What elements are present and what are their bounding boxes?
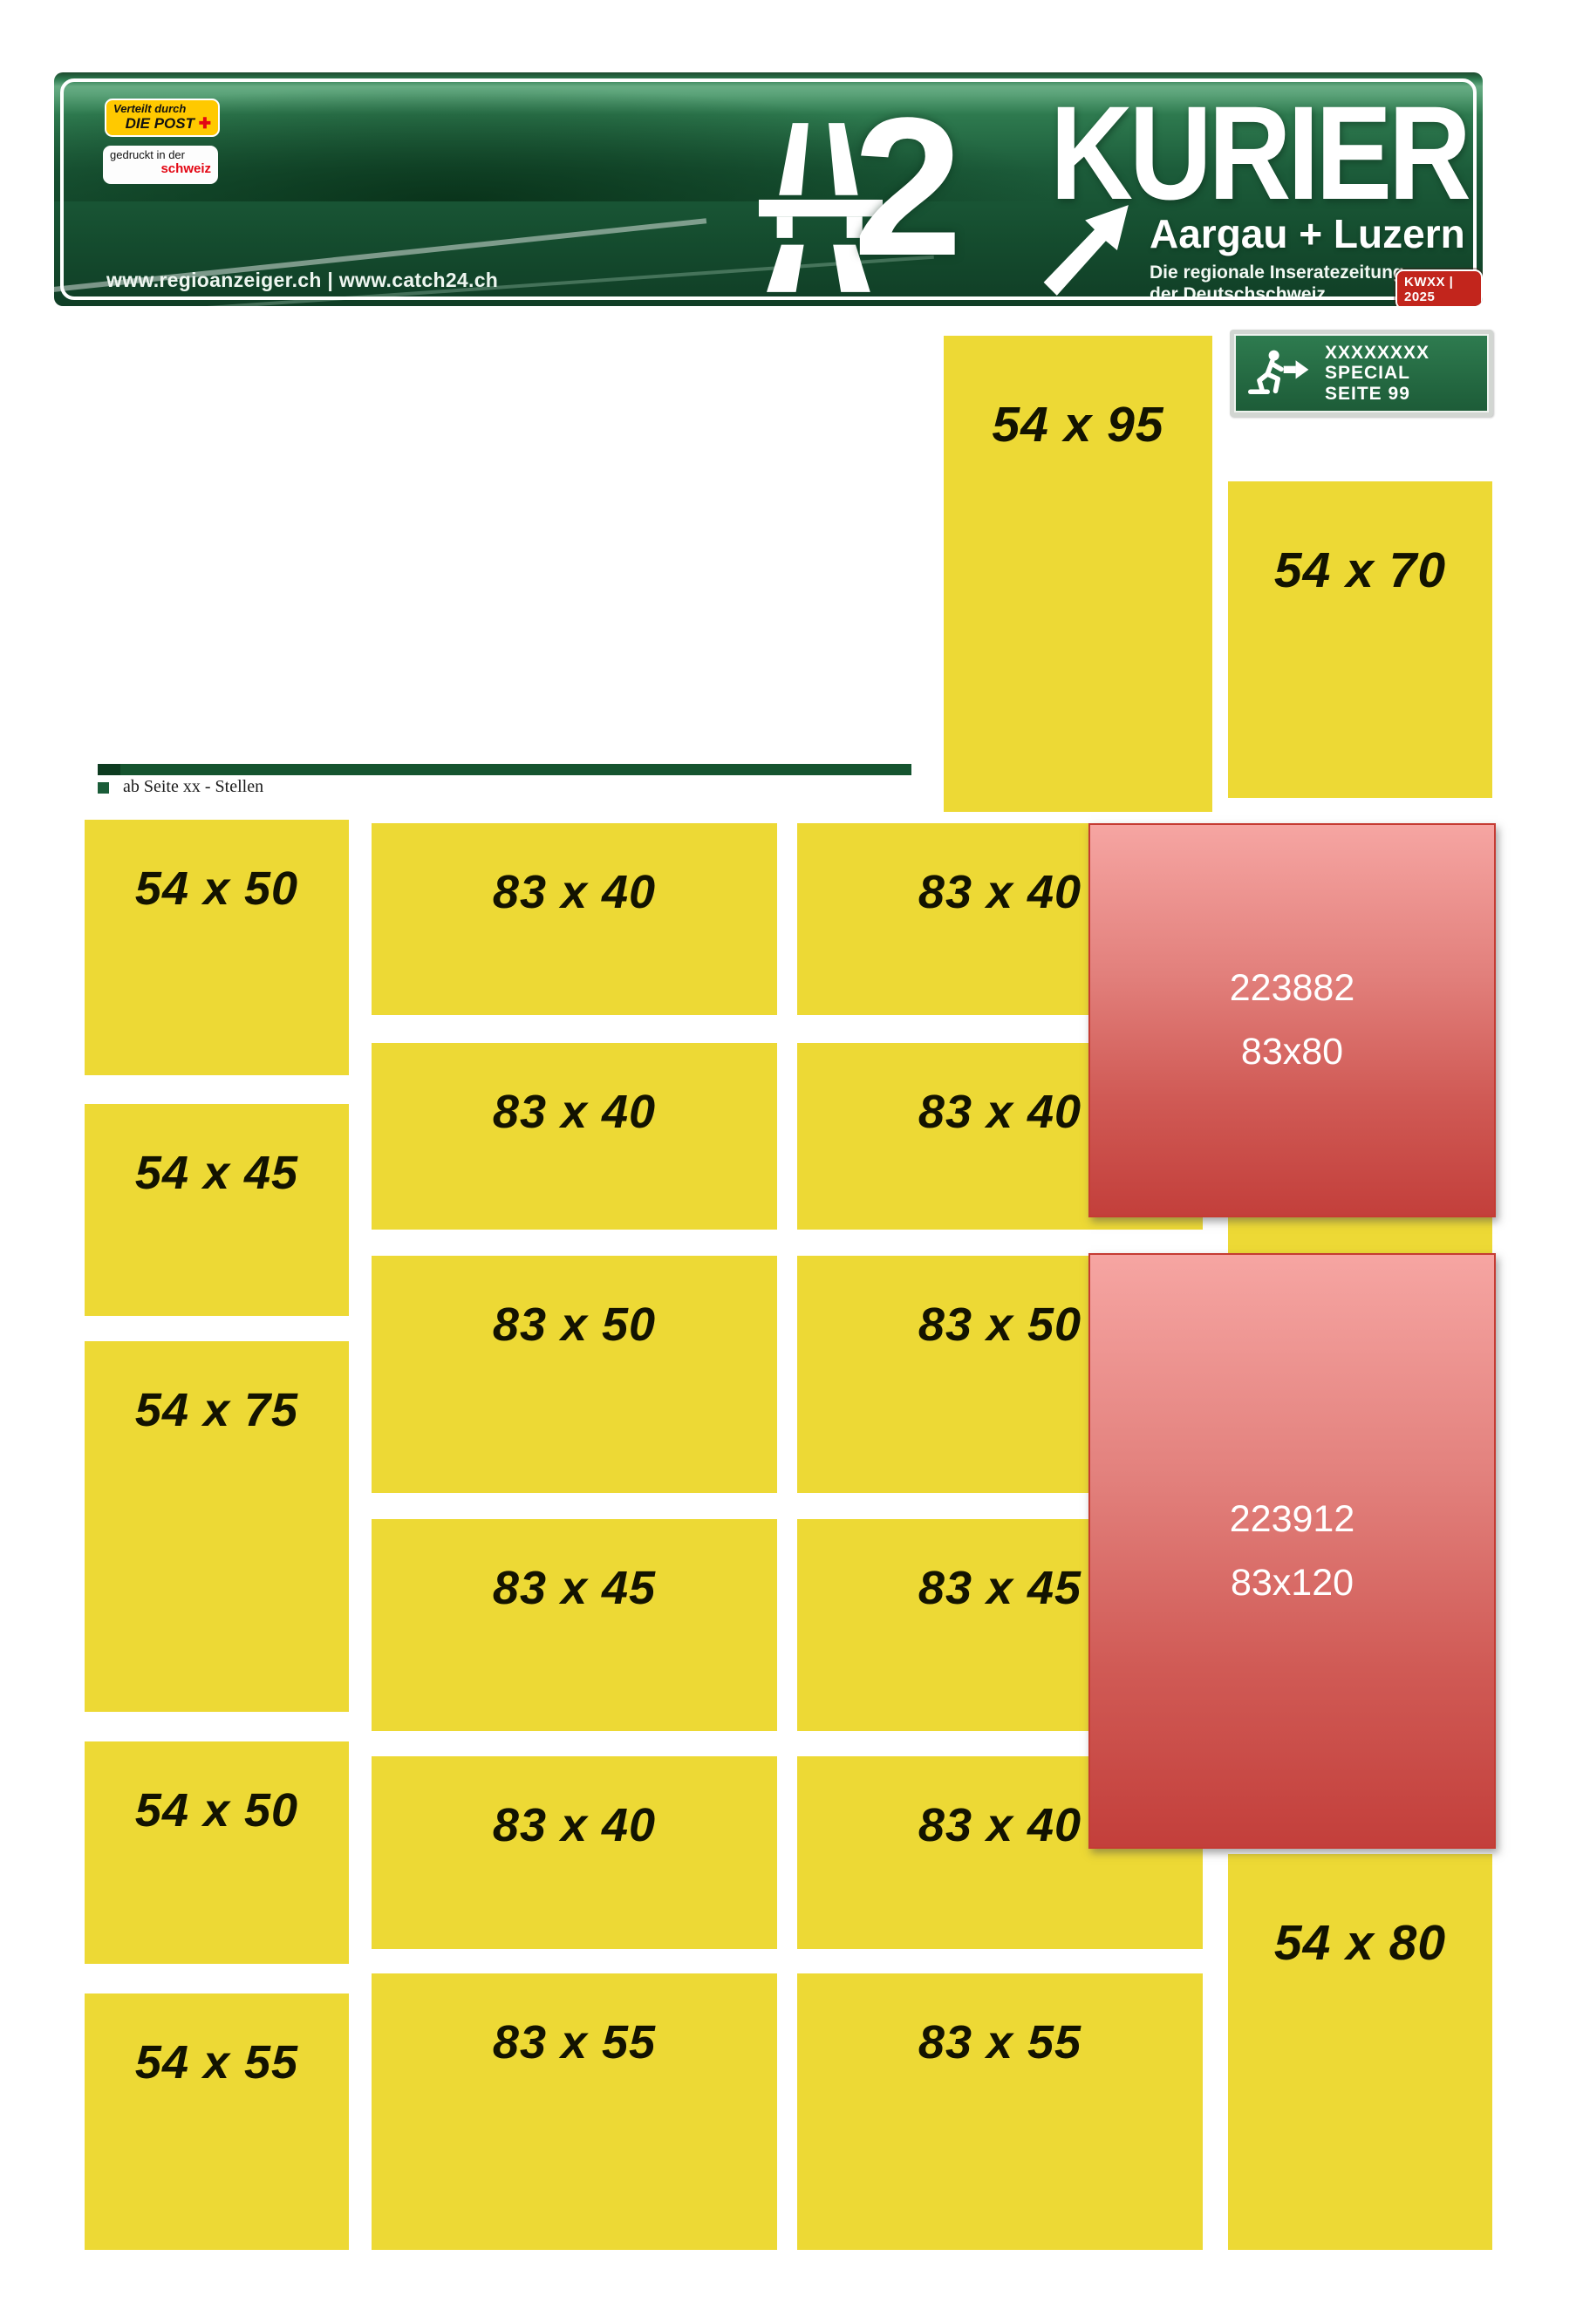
ad-slot-col2-83x45[interactable]: 83 x 45 — [372, 1519, 777, 1731]
ad-slot-size-label: 54 x 75 — [135, 1387, 298, 1434]
section-bullet-icon — [98, 782, 109, 794]
special-sign-text: XXXXXXXX SPECIAL SEITE 99 — [1325, 343, 1429, 405]
post-badge-line1: Verteilt durch — [113, 102, 211, 115]
media-plan-page: Verteilt durch DIE POST ✚ gedruckt in de… — [0, 0, 1583, 2324]
ad-slot-size-label: 54 x 70 — [1274, 546, 1446, 596]
swiss-badge-line2: schweiz — [110, 161, 211, 176]
claim-line1: Die regionale Inseratezeitung — [1150, 262, 1404, 283]
ad-slot-col1-54x50-a[interactable]: 54 x 50 — [85, 820, 349, 1075]
claim-line2: der Deutschschweiz — [1150, 283, 1404, 305]
ad-slot-size-label: 54 x 55 — [135, 2039, 298, 2086]
special-sign-inner: XXXXXXXX SPECIAL SEITE 99 — [1234, 334, 1489, 412]
ad-slot-size-label: 83 x 40 — [918, 1802, 1081, 1849]
ad-slot-size-label: 54 x 45 — [135, 1149, 298, 1196]
ad-slot-size-label: 54 x 50 — [135, 865, 298, 912]
ad-slot-slot-54x70[interactable]: 54 x 70 — [1228, 481, 1492, 798]
die-post-badge: Verteilt durch DIE POST ✚ — [105, 99, 220, 137]
ad-slot-col1-54x50-b[interactable]: 54 x 50 — [85, 1741, 349, 1964]
ad-slot-size-label: 83 x 40 — [918, 869, 1081, 916]
ad-slot-size-label: 83 x 50 — [493, 1301, 656, 1348]
ad-slot-col1-54x45[interactable]: 54 x 45 — [85, 1104, 349, 1316]
ad-slot-col2-83x40-c[interactable]: 83 x 40 — [372, 1756, 777, 1949]
printed-in-switzerland-badge: gedruckt in der schweiz — [103, 146, 218, 184]
sold-order-number: 223912 — [1230, 1501, 1355, 1538]
ad-slot-size-label: 83 x 40 — [493, 1802, 656, 1849]
ad-slot-size-label: 83 x 40 — [493, 869, 656, 916]
ad-slot-size-label: 83 x 40 — [493, 1088, 656, 1135]
exit-arrow-icon — [1031, 203, 1136, 297]
ad-slot-col2-83x40-a[interactable]: 83 x 40 — [372, 823, 777, 1015]
section-divider-bar — [98, 764, 911, 775]
region-title: Aargau + Luzern — [1150, 210, 1465, 257]
ad-slot-col1-54x55[interactable]: 54 x 55 — [85, 1993, 349, 2250]
ad-slot-size-label: 83 x 50 — [918, 1301, 1081, 1348]
logo-a2-number: 2 — [853, 93, 963, 281]
ad-slot-size-label: 83 x 55 — [493, 2019, 656, 2066]
header-banner: Verteilt durch DIE POST ✚ gedruckt in de… — [54, 72, 1483, 306]
sold-overlay-223882[interactable]: 22388283x80 — [1088, 823, 1496, 1217]
ad-slot-col2-83x40-b[interactable]: 83 x 40 — [372, 1043, 777, 1230]
ad-slot-col3-83x55[interactable]: 83 x 55 — [797, 1973, 1203, 2250]
sold-order-number: 223882 — [1230, 970, 1355, 1007]
ad-slot-size-label: 54 x 95 — [992, 400, 1163, 450]
swiss-badge-line1: gedruckt in der — [110, 148, 211, 161]
special-sign-line2: SPECIAL — [1325, 363, 1429, 384]
sold-overlay-223912[interactable]: 22391283x120 — [1088, 1253, 1496, 1849]
ad-slot-size-label: 54 x 80 — [1274, 1918, 1446, 1968]
swiss-post-cross-icon: ✚ — [199, 115, 211, 132]
special-sign-line1: XXXXXXXX — [1325, 343, 1429, 364]
ad-slot-size-label: 54 x 50 — [135, 1787, 298, 1834]
header-claim: Die regionale Inseratezeitung der Deutsc… — [1150, 262, 1404, 305]
ad-slot-slot-54x95[interactable]: 54 x 95 — [944, 336, 1212, 812]
running-man-exit-icon — [1248, 348, 1313, 399]
ad-slot-size-label: 83 x 45 — [493, 1564, 656, 1612]
ad-slot-col2-83x50[interactable]: 83 x 50 — [372, 1256, 777, 1493]
sold-ad-size: 83x80 — [1241, 1033, 1343, 1071]
post-badge-line2: DIE POST ✚ — [113, 115, 211, 133]
section-label: ab Seite xx - Stellen — [123, 777, 263, 797]
ad-slot-size-label: 83 x 40 — [918, 1088, 1081, 1135]
ad-slot-col2-83x55[interactable]: 83 x 55 — [372, 1973, 777, 2250]
header-urls: www.regioanzeiger.ch | www.catch24.ch — [106, 269, 498, 292]
edition-badge: KWXX | 2025 — [1395, 269, 1483, 306]
ad-slot-size-label: 83 x 45 — [918, 1564, 1081, 1612]
ad-slot-size-label: 83 x 55 — [918, 2019, 1081, 2066]
sold-ad-size: 83x120 — [1231, 1564, 1354, 1602]
ad-slot-slot-54x80[interactable]: 54 x 80 — [1228, 1854, 1492, 2250]
special-sign-line3: SEITE 99 — [1325, 384, 1429, 405]
special-section-sign: XXXXXXXX SPECIAL SEITE 99 — [1230, 330, 1493, 417]
ad-slot-col1-54x75[interactable]: 54 x 75 — [85, 1341, 349, 1712]
page-title: KURIER — [1050, 86, 1468, 220]
